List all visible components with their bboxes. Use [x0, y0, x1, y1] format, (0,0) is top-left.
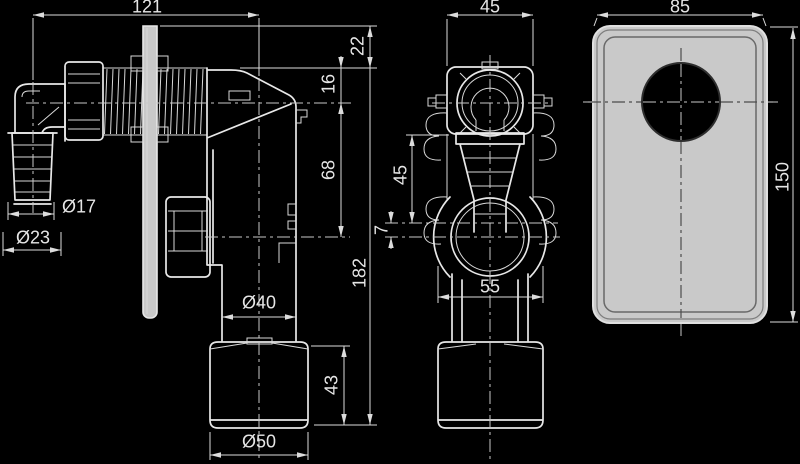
cover-plate-view: [583, 15, 798, 336]
dim-hose-outer: Ø23: [16, 228, 50, 249]
dim-front-inlet-top: 16: [319, 74, 340, 94]
dim-hose-inner: Ø17: [62, 197, 96, 218]
dim-outlet-dia: Ø40: [242, 293, 276, 314]
dim-front-height: 182: [350, 258, 371, 288]
side-view: [385, 15, 560, 460]
flange-plate: [447, 67, 533, 134]
dim-front-plate-top: 22: [348, 36, 369, 56]
dim-side-head-width: 45: [480, 0, 500, 18]
hose-barb: [12, 133, 53, 204]
dim-front-axis-drop: 68: [319, 160, 340, 180]
dim-side-axis-gap: 7: [372, 225, 393, 235]
union-nut: [65, 62, 103, 140]
dim-front-width: 121: [132, 0, 162, 18]
wall-plate: [143, 26, 157, 318]
dim-side-body-width: 55: [480, 277, 500, 298]
technical-drawing: 121 22 16 68 182 Ø17 Ø23 Ø40 43 Ø50 45 4…: [0, 0, 800, 464]
drawing-canvas: [0, 0, 800, 464]
dim-cover-width: 85: [670, 0, 690, 18]
dim-cup-height: 43: [322, 375, 343, 395]
side-dimensions: [391, 15, 543, 303]
dim-side-wall-to-axis: 45: [391, 165, 412, 185]
lower-nut: [166, 197, 210, 277]
dim-cup-dia: Ø50: [242, 432, 276, 453]
dim-cover-height: 150: [773, 162, 794, 192]
